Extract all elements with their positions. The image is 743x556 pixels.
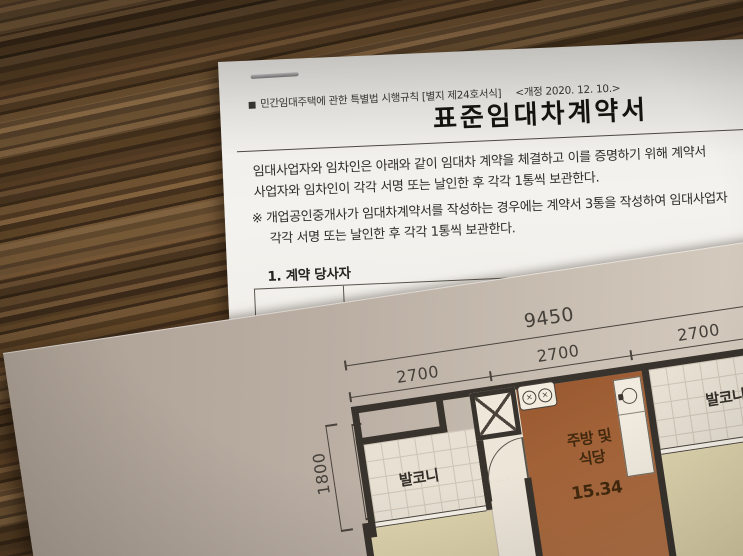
- shaft-x-icon: [469, 387, 522, 441]
- counter-divider: [619, 411, 645, 416]
- balcony-left-label: 발코니: [398, 464, 441, 491]
- staple-icon: [251, 72, 299, 79]
- dim-tick: [341, 528, 353, 532]
- balcony-right-label: 발코니: [704, 384, 743, 411]
- photo-of-documents-on-wood-table: ■민간임대주택에 관한 특별법 시행규칙 [별지 제24호서식]<개정 2020…: [0, 0, 743, 556]
- dim-total-width-label: 9450: [522, 303, 575, 332]
- section-1-heading: 1. 계약 당사자: [267, 261, 351, 285]
- dim-segment-label: 2700: [382, 360, 454, 389]
- faucet-icon: [618, 394, 624, 401]
- dim-segment-label: 2700: [522, 339, 594, 368]
- dim-segment-label: 2700: [663, 318, 735, 347]
- kitchen-area-value: 15.34: [531, 471, 663, 510]
- burner-icon: ×: [537, 387, 553, 403]
- square-bullet-icon: ■: [248, 100, 257, 110]
- dim-tick: [325, 423, 337, 427]
- burner-icon: ×: [521, 389, 537, 405]
